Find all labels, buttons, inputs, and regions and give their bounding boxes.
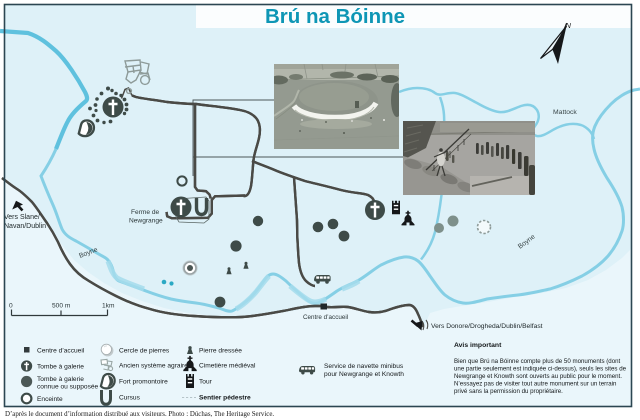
- svg-text:privé sans la permission du pr: privé sans la permission du propriétaire…: [454, 388, 563, 395]
- svg-text:une partie seulement est indiq: une partie seulement est indiquée ci-des…: [454, 366, 627, 373]
- svg-text:Fort promontoire: Fort promontoire: [119, 379, 168, 386]
- svg-text:Ancien système agraire: Ancien système agraire: [119, 363, 188, 370]
- svg-text:N: N: [566, 21, 572, 30]
- svg-text:Cimetière médiéval: Cimetière médiéval: [199, 363, 256, 370]
- svg-text:Navan/Dublin: Navan/Dublin: [4, 223, 46, 230]
- svg-text:Service de navette minibus: Service de navette minibus: [324, 363, 404, 370]
- svg-text:Centre d’accueil: Centre d’accueil: [303, 314, 348, 321]
- svg-text:connue ou supposée: connue ou supposée: [37, 384, 99, 391]
- svg-text:Enceinte: Enceinte: [37, 396, 63, 403]
- svg-text:Brú na Bóinne: Brú na Bóinne: [265, 5, 405, 28]
- svg-text:Tombe à galerie: Tombe à galerie: [37, 364, 84, 371]
- svg-text:Vers Slane/: Vers Slane/: [4, 214, 40, 221]
- svg-text:500 m: 500 m: [52, 303, 71, 310]
- svg-text:Cursus: Cursus: [119, 395, 141, 402]
- svg-text:0: 0: [9, 303, 13, 310]
- svg-text:Newgrange et Knowth sont ouver: Newgrange et Knowth sont ouverts au publ…: [454, 373, 622, 380]
- svg-text:D’après le document d’informat: D’après le document d’information distri…: [5, 411, 274, 418]
- svg-text:Mattock: Mattock: [553, 109, 577, 116]
- svg-text:Sentier pédestre: Sentier pédestre: [199, 395, 251, 402]
- svg-text:Tour: Tour: [199, 379, 213, 386]
- svg-text:Bien que Brú na Bóinne compte: Bien que Brú na Bóinne compte plus de 50…: [454, 358, 621, 365]
- svg-text:Centre d’accueil: Centre d’accueil: [37, 348, 85, 355]
- svg-text:Tombe à galerie: Tombe à galerie: [37, 376, 84, 383]
- svg-text:Pierre dressée: Pierre dressée: [199, 348, 242, 355]
- svg-text:Avis important: Avis important: [454, 342, 502, 349]
- svg-text:Ferme de: Ferme de: [131, 209, 160, 216]
- svg-text:N’essayez pas de visiter tout: N’essayez pas de visiter tout autre monu…: [454, 381, 617, 388]
- svg-text:Vers Donore/Drogheda/Dublin/Be: Vers Donore/Drogheda/Dublin/Belfast: [431, 323, 543, 330]
- svg-text:Cercle de pierres: Cercle de pierres: [119, 348, 170, 355]
- svg-text:1km: 1km: [102, 303, 115, 310]
- svg-text:pour Newgrange et Knowth: pour Newgrange et Knowth: [324, 371, 404, 378]
- svg-text:Newgrange: Newgrange: [129, 218, 163, 225]
